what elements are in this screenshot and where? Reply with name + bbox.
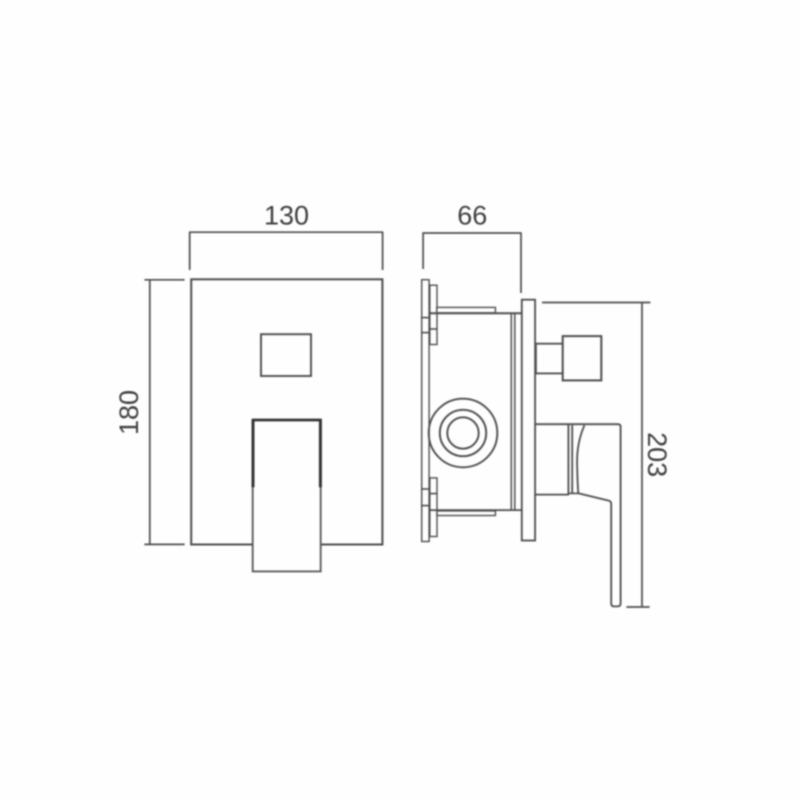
svg-text:66: 66 (457, 201, 487, 231)
svg-text:180: 180 (114, 390, 144, 435)
svg-text:130: 130 (264, 201, 309, 231)
svg-text:203: 203 (642, 432, 672, 477)
